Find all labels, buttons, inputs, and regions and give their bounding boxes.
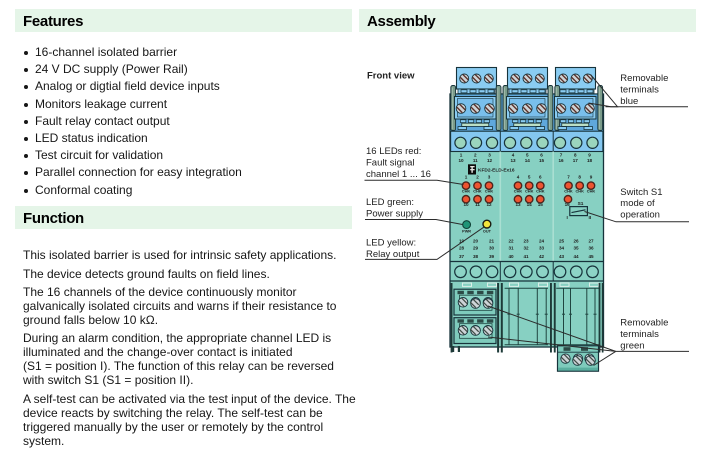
- svg-text:14: 14: [525, 158, 531, 163]
- svg-text:5: 5: [526, 152, 529, 157]
- svg-text:Relay output: Relay output: [366, 249, 420, 260]
- svg-text:Power supply: Power supply: [366, 209, 423, 220]
- svg-text:36: 36: [588, 245, 594, 250]
- svg-text:LED green:: LED green:: [366, 197, 414, 208]
- svg-text:14: 14: [527, 202, 533, 207]
- svg-text:CHK: CHK: [473, 189, 482, 194]
- svg-text:5: 5: [528, 175, 531, 180]
- svg-text:15: 15: [539, 158, 545, 163]
- svg-text:8: 8: [574, 152, 577, 157]
- svg-text:23: 23: [523, 239, 529, 244]
- svg-text:blue: blue: [620, 96, 638, 107]
- svg-text:CHK: CHK: [525, 189, 534, 194]
- svg-text:37: 37: [459, 254, 465, 259]
- svg-text:43: 43: [559, 254, 565, 259]
- svg-text:CHK: CHK: [462, 189, 471, 194]
- svg-text:CHK: CHK: [514, 189, 523, 194]
- svg-text:LED yellow:: LED yellow:: [366, 238, 416, 249]
- svg-text:7: 7: [560, 152, 563, 157]
- svg-text:29: 29: [473, 245, 479, 250]
- svg-text:25: 25: [559, 239, 565, 244]
- svg-text:9: 9: [588, 152, 591, 157]
- svg-text:7: 7: [567, 175, 570, 180]
- svg-text:CHK: CHK: [587, 189, 596, 194]
- svg-text:Fault signal: Fault signal: [366, 158, 415, 169]
- svg-text:31: 31: [508, 245, 514, 250]
- svg-text:CHK: CHK: [564, 189, 573, 194]
- svg-text:17: 17: [573, 158, 579, 163]
- svg-text:channel 1 ... 16: channel 1 ... 16: [366, 169, 431, 180]
- svg-text:6: 6: [539, 175, 542, 180]
- svg-text:CHK: CHK: [536, 189, 545, 194]
- svg-text:mode of: mode of: [620, 198, 655, 209]
- svg-text:39: 39: [489, 254, 495, 259]
- svg-text:2: 2: [476, 175, 479, 180]
- svg-text:21: 21: [489, 239, 495, 244]
- svg-text:26: 26: [573, 239, 579, 244]
- svg-text:OUT: OUT: [483, 230, 492, 234]
- svg-text:16: 16: [558, 158, 564, 163]
- svg-text:6: 6: [540, 152, 543, 157]
- svg-text:40: 40: [508, 254, 514, 259]
- svg-text:28: 28: [459, 245, 465, 250]
- svg-text:CHK: CHK: [485, 189, 494, 194]
- svg-text:PWR: PWR: [462, 230, 471, 234]
- svg-text:10: 10: [463, 202, 469, 207]
- svg-text:12: 12: [486, 202, 492, 207]
- svg-text:CHK: CHK: [575, 189, 584, 194]
- svg-text:27: 27: [588, 239, 594, 244]
- svg-text:45: 45: [588, 254, 594, 259]
- svg-text:3: 3: [488, 152, 491, 157]
- svg-text:44: 44: [573, 254, 579, 259]
- svg-text:41: 41: [523, 254, 529, 259]
- svg-text:10: 10: [458, 158, 464, 163]
- svg-text:1: 1: [460, 152, 463, 157]
- svg-text:terminals: terminals: [620, 329, 659, 340]
- svg-text:9: 9: [590, 175, 593, 180]
- svg-text:4: 4: [517, 175, 520, 180]
- svg-text:30: 30: [489, 245, 495, 250]
- svg-text:3: 3: [488, 175, 491, 180]
- svg-text:Removable: Removable: [620, 73, 668, 84]
- svg-text:Front view: Front view: [367, 70, 415, 81]
- svg-text:13: 13: [510, 158, 516, 163]
- svg-text:32: 32: [523, 245, 529, 250]
- svg-text:1: 1: [465, 175, 468, 180]
- svg-text:11: 11: [473, 158, 478, 163]
- svg-text:green: green: [620, 341, 644, 352]
- svg-text:22: 22: [508, 239, 514, 244]
- svg-text:33: 33: [539, 245, 545, 250]
- svg-text:24: 24: [539, 239, 545, 244]
- svg-text:42: 42: [539, 254, 545, 259]
- svg-text:KFD2-ELD-Ex16: KFD2-ELD-Ex16: [478, 168, 515, 174]
- svg-text:13: 13: [515, 202, 521, 207]
- svg-text:18: 18: [587, 158, 593, 163]
- svg-text:20: 20: [473, 239, 479, 244]
- svg-text:12: 12: [487, 158, 493, 163]
- svg-text:operation: operation: [620, 210, 660, 221]
- svg-text:Switch S1: Switch S1: [620, 187, 662, 198]
- svg-text:11: 11: [475, 202, 480, 207]
- svg-text:8: 8: [578, 175, 581, 180]
- svg-text:Removable: Removable: [620, 318, 668, 329]
- svg-text:34: 34: [559, 245, 565, 250]
- svg-text:15: 15: [538, 202, 544, 207]
- svg-text:2: 2: [474, 152, 477, 157]
- svg-text:35: 35: [573, 245, 579, 250]
- svg-text:terminals: terminals: [620, 84, 659, 95]
- svg-text:16 LEDs red:: 16 LEDs red:: [366, 146, 421, 157]
- svg-text:38: 38: [473, 254, 479, 259]
- svg-text:4: 4: [512, 152, 515, 157]
